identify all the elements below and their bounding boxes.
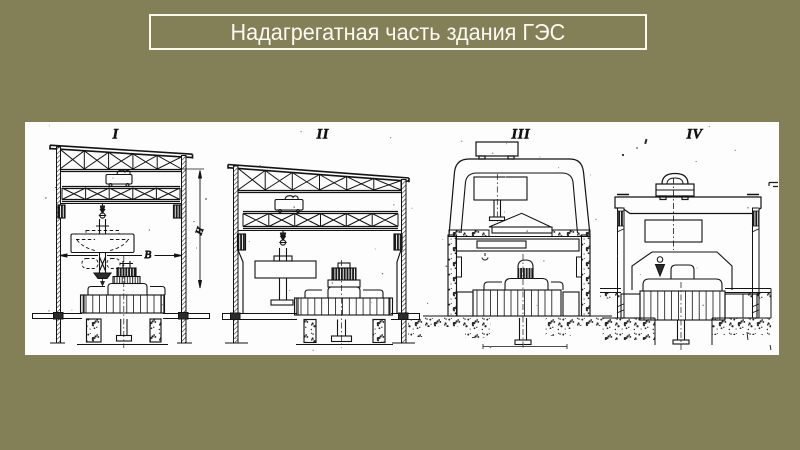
svg-text:IV: IV xyxy=(686,127,704,143)
svg-text:I: I xyxy=(112,127,120,143)
svg-text:B: B xyxy=(145,249,152,261)
svg-text:III: III xyxy=(511,127,531,143)
svg-text:II: II xyxy=(316,127,330,143)
